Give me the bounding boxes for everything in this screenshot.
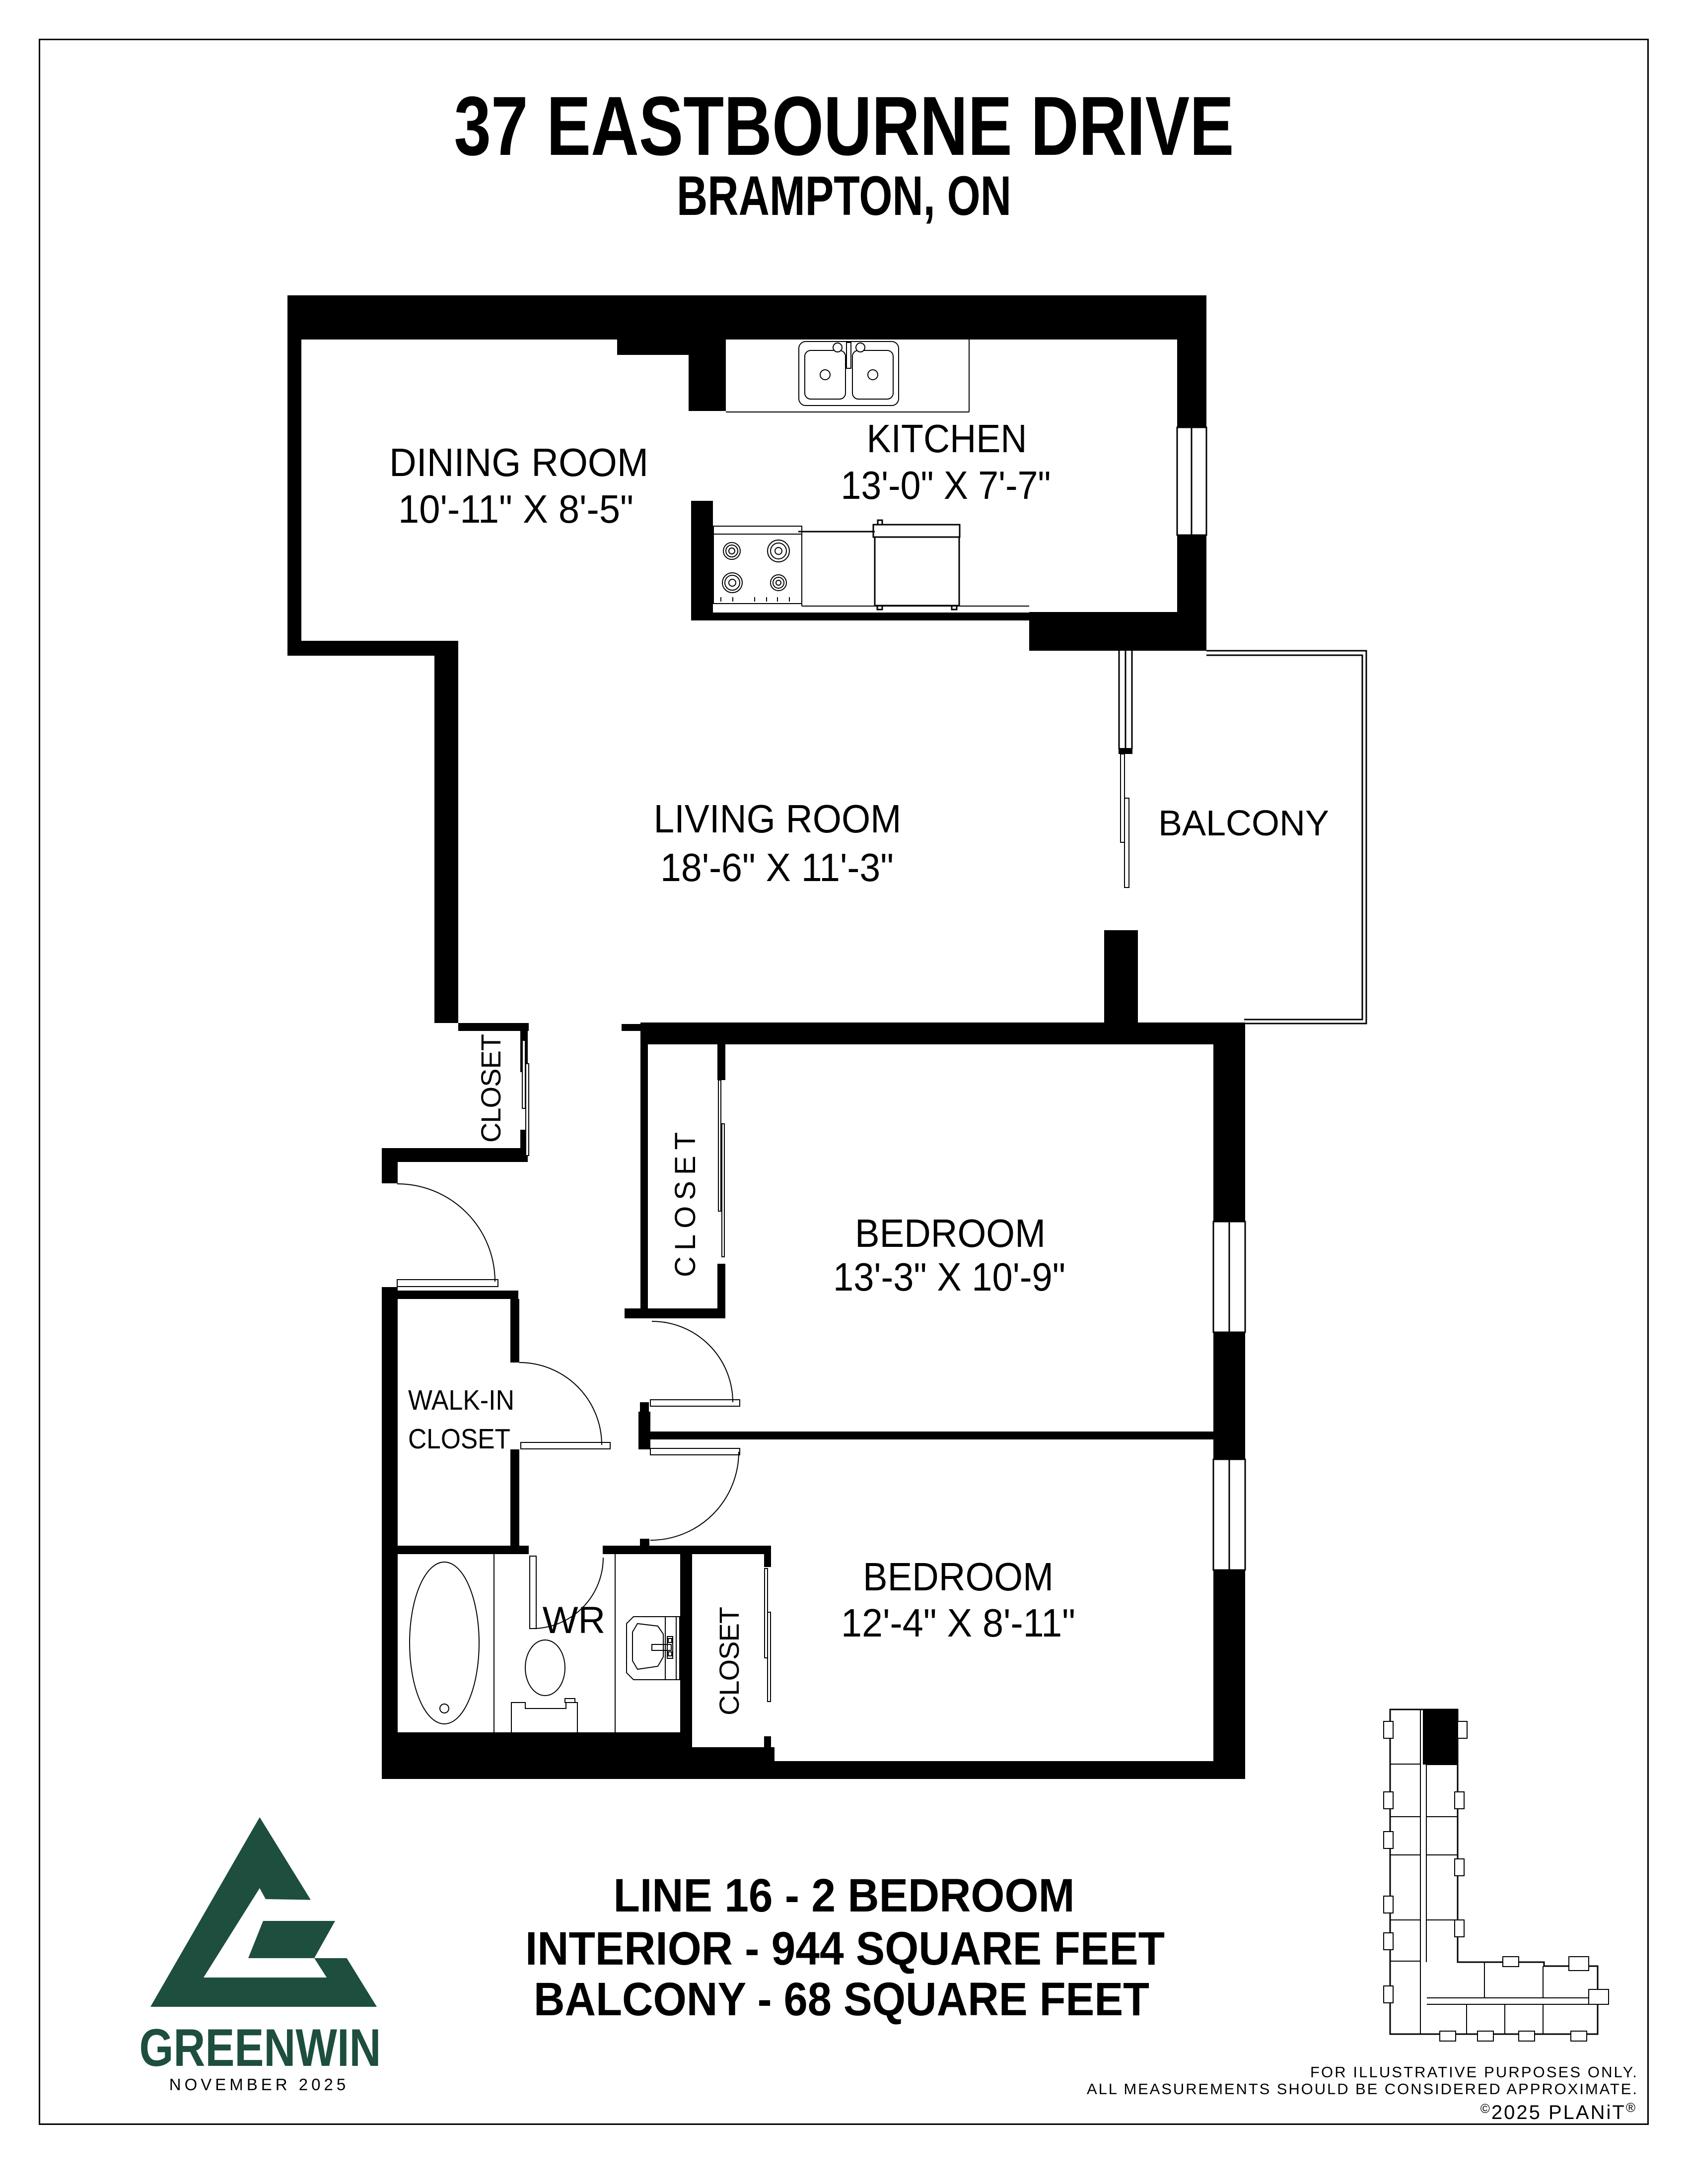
svg-text:BRAMPTON, ON: BRAMPTON, ON (677, 165, 1011, 227)
svg-text:BEDROOM: BEDROOM (863, 1555, 1054, 1599)
svg-text:18'-6" X 11'-3": 18'-6" X 11'-3" (660, 845, 894, 889)
svg-text:CLOSET: CLOSET (475, 1034, 506, 1143)
svg-text:LINE 16 - 2 BEDROOM: LINE 16 - 2 BEDROOM (614, 1869, 1075, 1922)
svg-text:13'-3" X 10'-9": 13'-3" X 10'-9" (833, 1255, 1065, 1299)
svg-text:12'-4" X 8'-11": 12'-4" X 8'-11" (841, 1601, 1075, 1645)
svg-text:ALL MEASUREMENTS SHOULD BE CON: ALL MEASUREMENTS SHOULD BE CONSIDERED AP… (1087, 2080, 1637, 2098)
svg-text:10'-11" X 8'-5": 10'-11" X 8'-5" (398, 487, 633, 531)
svg-text:CLOSET: CLOSET (669, 1126, 702, 1277)
svg-text:LIVING ROOM: LIVING ROOM (654, 797, 902, 841)
svg-text:CLOSET: CLOSET (408, 1423, 510, 1455)
svg-text:INTERIOR - 944 SQUARE FEET: INTERIOR - 944 SQUARE FEET (525, 1922, 1165, 1975)
svg-text:37 EASTBOURNE DRIVE: 37 EASTBOURNE DRIVE (454, 79, 1234, 173)
svg-text:KITCHEN: KITCHEN (867, 416, 1027, 461)
svg-text:BALCONY: BALCONY (1158, 804, 1329, 843)
svg-text:CLOSET: CLOSET (713, 1607, 745, 1715)
svg-text:WR: WR (543, 1599, 606, 1641)
svg-text:©2025 PLANiT®: ©2025 PLANiT® (1480, 2100, 1637, 2123)
svg-text:GREENWIN: GREENWIN (140, 2018, 381, 2077)
svg-text:BALCONY - 68 SQUARE FEET: BALCONY - 68 SQUARE FEET (534, 1973, 1149, 2026)
svg-text:DINING ROOM: DINING ROOM (389, 440, 648, 484)
svg-text:FOR ILLUSTRATIVE PURPOSES ONLY: FOR ILLUSTRATIVE PURPOSES ONLY. (1310, 2063, 1637, 2081)
svg-text:NOVEMBER 2025: NOVEMBER 2025 (169, 2075, 349, 2094)
svg-text:WALK-IN: WALK-IN (408, 1384, 514, 1416)
svg-text:BEDROOM: BEDROOM (855, 1211, 1046, 1255)
svg-text:13'-0" X 7'-7": 13'-0" X 7'-7" (841, 463, 1051, 507)
